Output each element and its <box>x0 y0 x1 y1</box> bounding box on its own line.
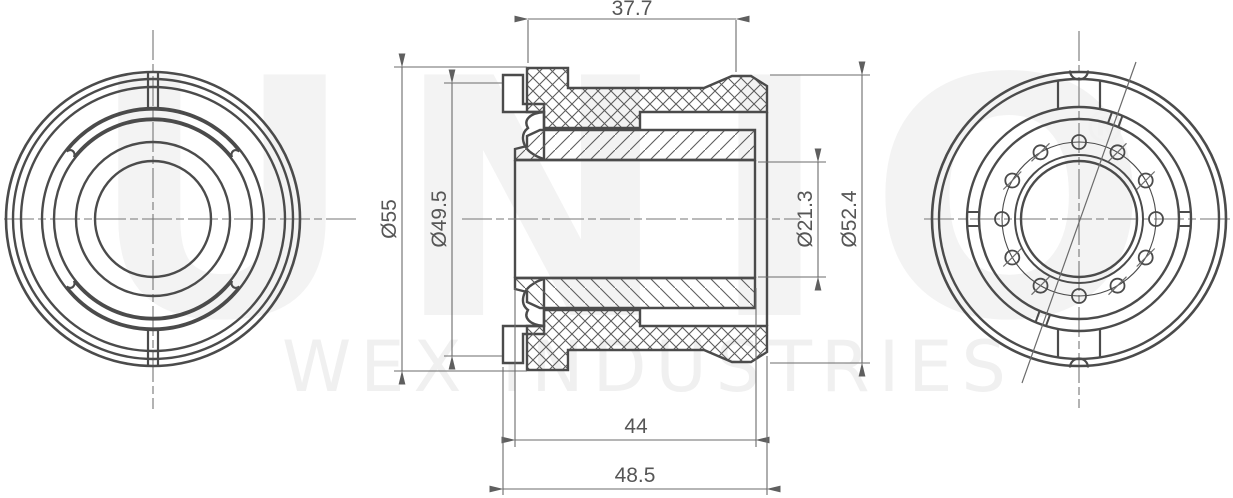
dim-text-outer-diameter: Ø55 <box>378 199 401 239</box>
rear-view <box>924 31 1231 408</box>
rubber-section-top <box>527 68 767 128</box>
dim-text-bore-diameter: Ø21.3 <box>794 190 817 247</box>
dim-text-sleeve-diameter: Ø49.5 <box>428 190 451 247</box>
inner-sleeve-section-top <box>515 130 755 160</box>
section-bottom-half <box>503 278 767 370</box>
section-top-half <box>503 68 767 160</box>
rubber-section-bottom <box>527 310 767 370</box>
dim-text-inner-length: 44 <box>624 415 648 438</box>
dimension-labels: 37.7 Ø55 Ø49.5 Ø21.3 Ø52.4 44 48.5 <box>378 0 861 487</box>
inner-sleeve-section-bottom <box>515 278 755 308</box>
front-view <box>4 30 356 409</box>
bushing-drawing-canvas: 37.7 Ø55 Ø49.5 Ø21.3 Ø52.4 44 48.5 <box>0 0 1233 498</box>
dim-text-end-diameter: Ø52.4 <box>838 190 861 248</box>
technical-drawing-page: { "drawing": { "type": "technical-drawin… <box>0 0 1233 498</box>
dim-text-top-width: 37.7 <box>612 0 653 20</box>
dim-text-overall-length: 48.5 <box>615 464 656 487</box>
section-view <box>462 68 800 370</box>
